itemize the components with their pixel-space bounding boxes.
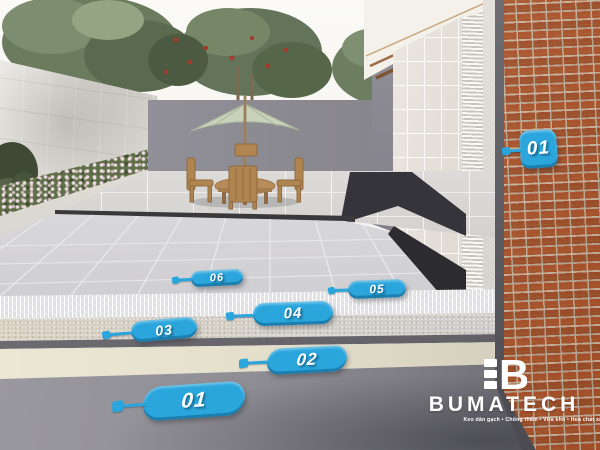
marker-handle: [502, 147, 511, 156]
marker-stem: [245, 360, 269, 364]
bumatech-logo: B BUMATECH Keo dán gạch • Chống thấm • V…: [426, 356, 582, 428]
marker-handle: [171, 276, 179, 284]
marker-handle: [226, 311, 235, 320]
layer-marker-02: 02: [266, 345, 348, 375]
marker-label: 05: [369, 282, 385, 297]
layer-marker-04: 04: [253, 301, 334, 327]
marker-label: 01: [180, 388, 207, 414]
svg-text:B: B: [499, 356, 527, 392]
louver-strip: [462, 8, 484, 308]
marker-label: 06: [210, 272, 225, 285]
brick-wall-marker-01: 01: [519, 129, 559, 169]
marker-handle: [327, 287, 335, 295]
marker-label: 02: [296, 349, 319, 370]
scene: 01 02 03 04 05 06 01: [0, 0, 600, 450]
layer-marker-05: 05: [348, 279, 407, 299]
marker-handle: [112, 400, 123, 413]
marker-label: 04: [283, 305, 302, 323]
marker-handle: [102, 330, 111, 339]
marker-label: 01: [526, 137, 551, 161]
bumatech-logo-icon: B: [481, 356, 527, 392]
brand-tagline: Keo dán gạch • Chống thấm • Vữa khô • Ho…: [463, 417, 544, 423]
patio-furniture: [165, 84, 325, 210]
marker-handle: [239, 358, 248, 368]
layer-marker-06: 06: [191, 269, 244, 288]
marker-label: 03: [155, 321, 174, 338]
brand-name: BUMATECH: [426, 393, 582, 416]
